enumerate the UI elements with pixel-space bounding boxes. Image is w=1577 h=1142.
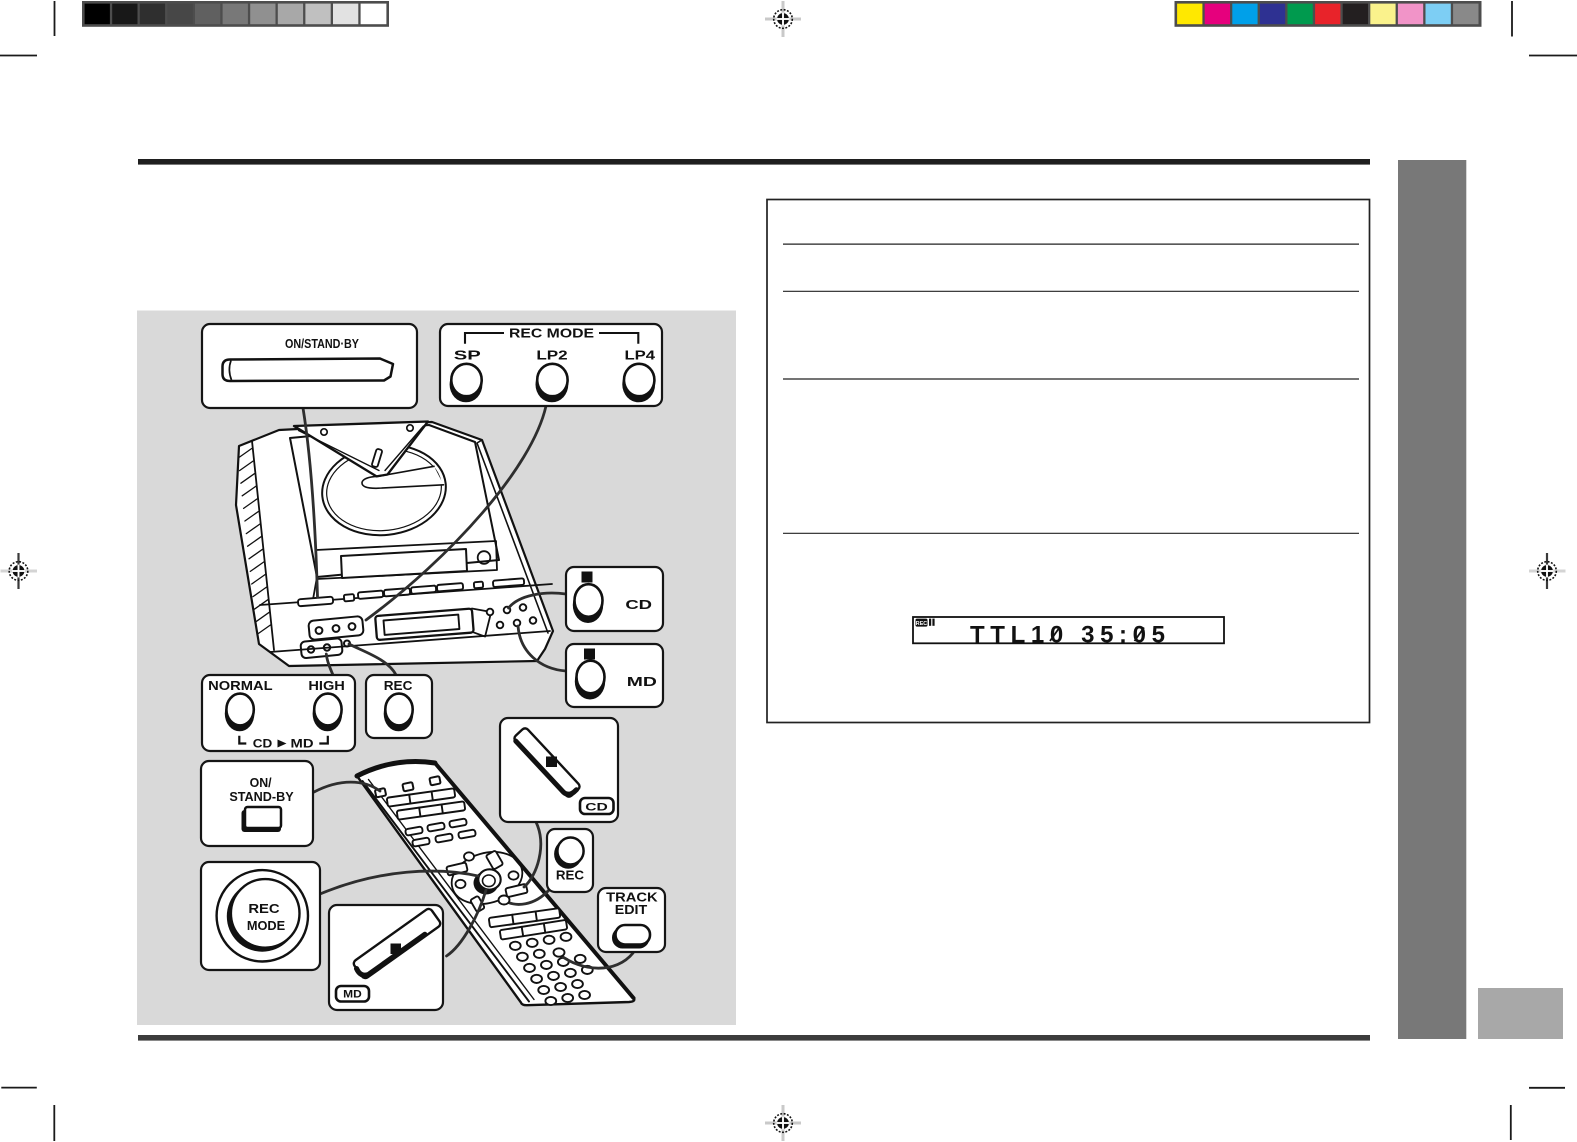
- svg-text:EDIT: EDIT: [615, 903, 648, 917]
- svg-text:LP2: LP2: [536, 349, 567, 363]
- svg-text:MODE: MODE: [247, 919, 285, 933]
- svg-text:MD: MD: [343, 989, 362, 1001]
- svg-text:REC: REC: [916, 621, 927, 627]
- svg-text:MD: MD: [291, 739, 314, 751]
- svg-text:ON/: ON/: [250, 776, 273, 790]
- svg-text:CD: CD: [625, 598, 652, 612]
- svg-text:CD: CD: [253, 739, 273, 751]
- svg-text:SP: SP: [454, 349, 481, 363]
- svg-text:CD: CD: [585, 802, 608, 814]
- svg-text:ON/STAND·BY: ON/STAND·BY: [285, 337, 360, 351]
- svg-text:REC: REC: [384, 679, 413, 693]
- svg-text:NORMAL: NORMAL: [208, 679, 273, 693]
- svg-text:LP4: LP4: [625, 349, 656, 363]
- svg-text:REC: REC: [248, 902, 279, 916]
- svg-text:STAND-BY: STAND-BY: [229, 790, 294, 804]
- svg-text:HIGH: HIGH: [308, 679, 345, 693]
- svg-text:MD: MD: [627, 675, 657, 689]
- svg-text:REC: REC: [556, 869, 584, 883]
- svg-text:REC MODE: REC MODE: [509, 327, 594, 341]
